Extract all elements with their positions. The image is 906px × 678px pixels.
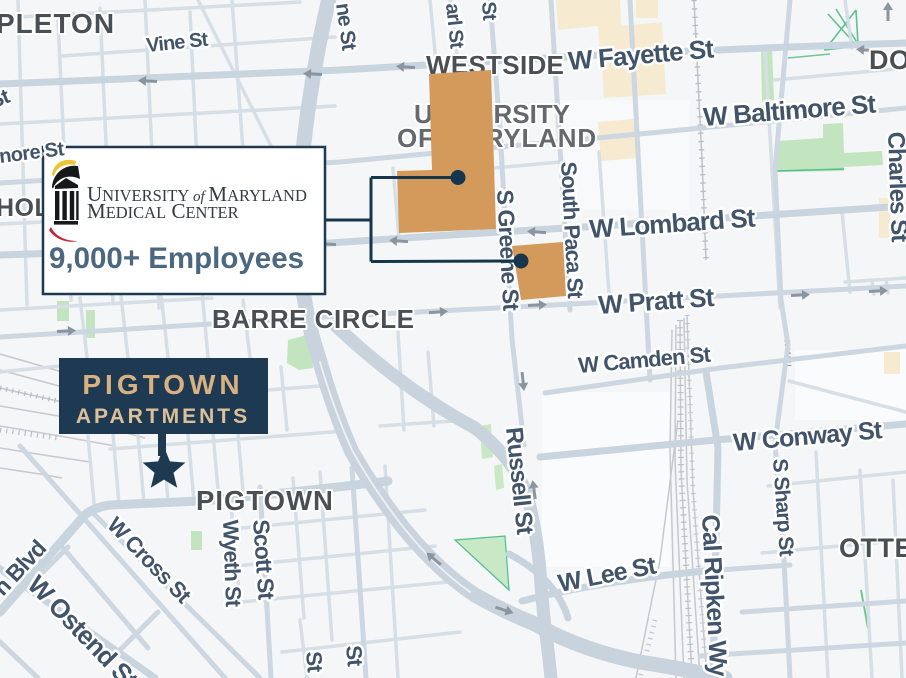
svg-text:St: St (341, 644, 368, 668)
svg-text:St: St (477, 1, 500, 22)
svg-text:MEDICAL CENTER: MEDICAL CENTER (87, 199, 239, 223)
svg-text:Wyeth St: Wyeth St (218, 519, 246, 608)
svg-text:PIGTOWN: PIGTOWN (196, 485, 334, 516)
svg-text:OTTE: OTTE (839, 533, 906, 563)
svg-text:Charles St: Charles St (882, 131, 906, 242)
svg-text:9,000+ Employees: 9,000+ Employees (49, 242, 304, 275)
svg-text:APARTMENTS: APARTMENTS (76, 405, 250, 428)
svg-text:DO: DO (869, 45, 906, 75)
svg-text:PLETON: PLETON (0, 8, 115, 39)
svg-text:St: St (301, 650, 328, 674)
svg-text:PIGTOWN: PIGTOWN (82, 369, 243, 400)
svg-text:BARRE CIRCLE: BARRE CIRCLE (212, 304, 414, 334)
svg-text:OF MARYLAND: OF MARYLAND (397, 123, 597, 153)
